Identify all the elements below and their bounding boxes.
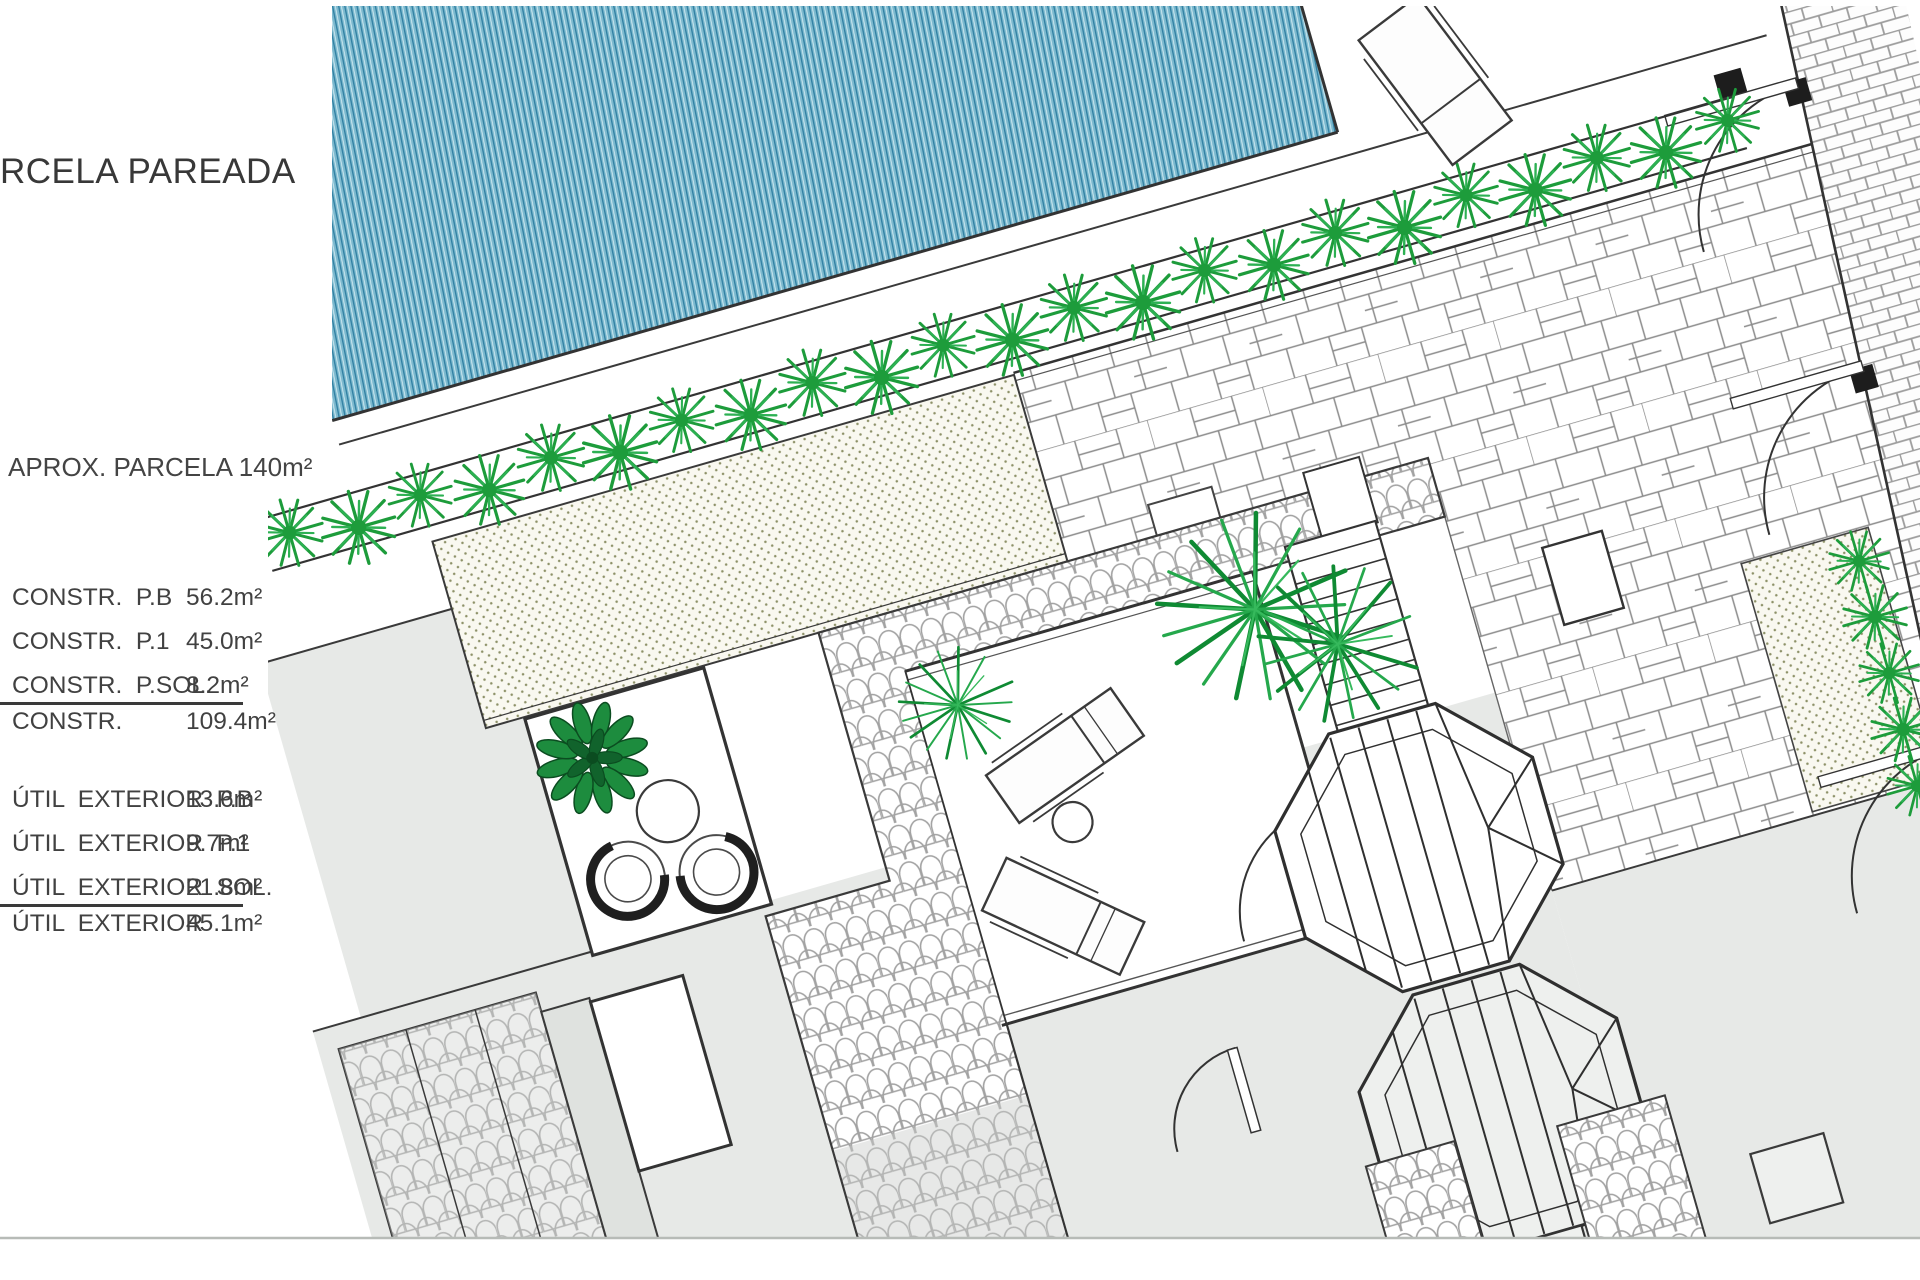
row-value: 45.1m² — [186, 910, 262, 938]
util-row-sol: ÚTIL EXTERIOR SOL. 21.8m² — [0, 874, 300, 904]
plan-title: RCELA PAREADA — [0, 152, 296, 192]
row-label: ÚTIL EXTERIOR — [12, 910, 203, 938]
constr-total-row: CONSTR. 109.4m² — [0, 708, 300, 738]
table-rule-2 — [0, 904, 243, 907]
row-value: 109.4m² — [186, 708, 276, 736]
row-value: 21.8m² — [186, 874, 262, 902]
constr-row-pb: CONSTR. P.B 56.2m² — [0, 584, 300, 614]
row-value: 45.0m² — [186, 628, 262, 656]
row-label: CONSTR. P.B — [12, 584, 172, 612]
row-value: 13.6m² — [186, 786, 262, 814]
constr-row-psol: CONSTR. P.SOL. 8.2m² — [0, 672, 300, 702]
parcel-area-note: APROX. PARCELA 140m² — [8, 452, 312, 483]
info-panel: RCELA PAREADA APROX. PARCELA 140m² CONST… — [0, 0, 300, 1280]
row-value: 56.2m² — [186, 584, 262, 612]
util-row-pb: ÚTIL EXTERIOR P.B 13.6m² — [0, 786, 300, 816]
row-label: CONSTR. — [12, 708, 122, 736]
sun-lounger-pool — [1353, 0, 1517, 169]
util-total-row: ÚTIL EXTERIOR 45.1m² — [0, 910, 300, 940]
util-row-p1: ÚTIL EXTERIOR P.1 9.7m² — [0, 830, 300, 860]
row-label: CONSTR. P.SOL. — [12, 672, 212, 700]
constr-row-p1: CONSTR. P.1 45.0m² — [0, 628, 300, 658]
row-label: CONSTR. P.1 — [12, 628, 169, 656]
table-rule-1 — [0, 702, 243, 705]
site-plan-page: RCELA PAREADA APROX. PARCELA 140m² CONST… — [0, 0, 1920, 1280]
row-value: 8.2m² — [186, 672, 249, 700]
row-value: 9.7m² — [186, 830, 249, 858]
